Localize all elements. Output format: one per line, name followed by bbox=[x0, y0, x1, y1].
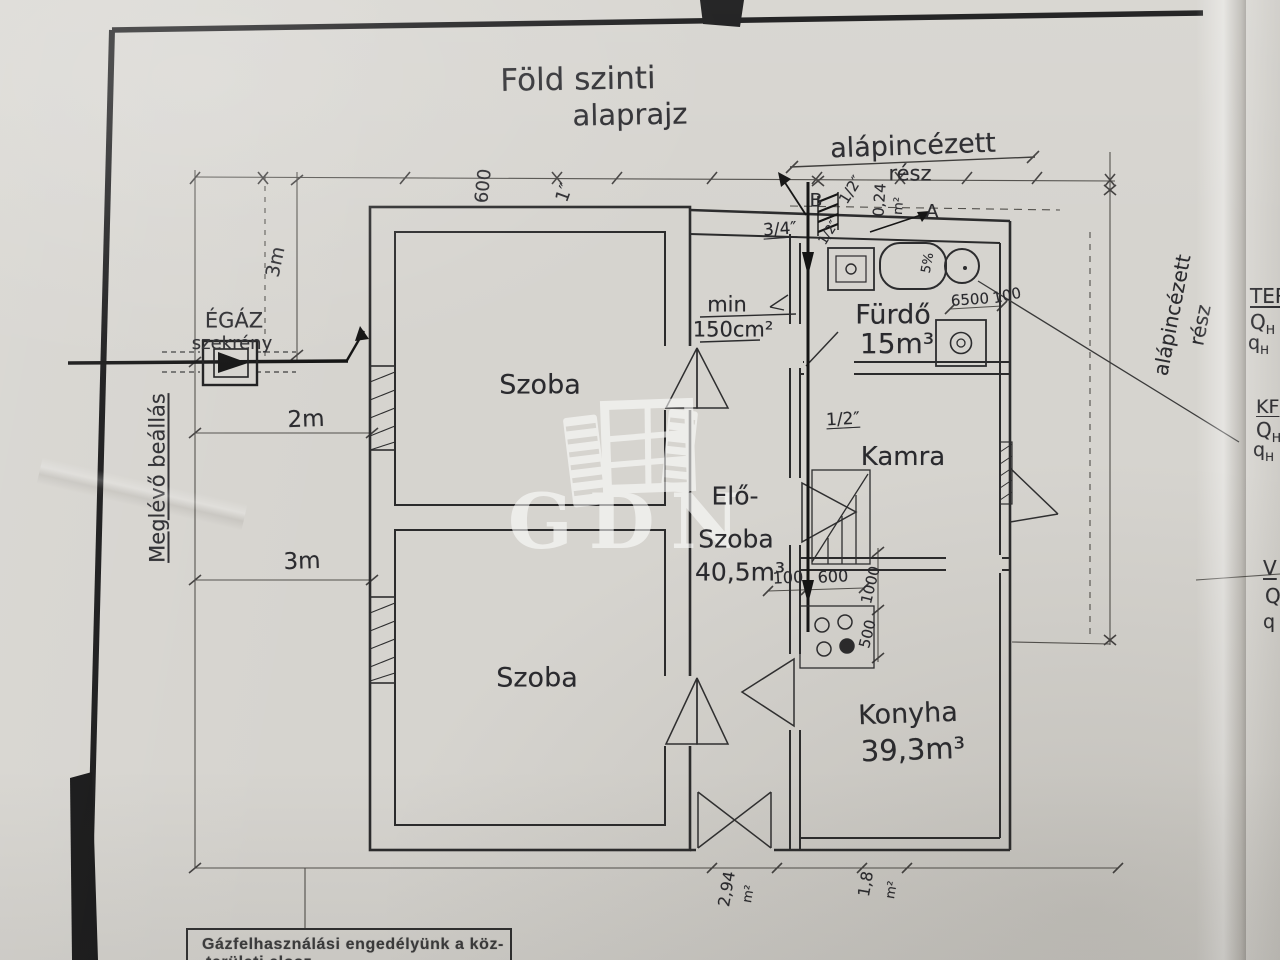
room-label-szoba-lower: Szoba bbox=[496, 665, 578, 692]
gas-cabinet-label-line2: szekrény bbox=[192, 335, 272, 353]
dim-294-unit: m² bbox=[741, 884, 757, 904]
dim-600-top: 600 bbox=[473, 168, 494, 204]
vent-area-label: 0,24 bbox=[871, 183, 888, 217]
page-title-line2: alaprajz bbox=[572, 99, 687, 130]
dim-100-hall: 100 bbox=[772, 569, 803, 587]
marker-a: A bbox=[926, 203, 939, 222]
flue-detail bbox=[812, 470, 870, 564]
vent-min-label: min bbox=[707, 295, 747, 316]
room-label-furdo: Fürdő bbox=[855, 302, 930, 329]
existing-stand-label: Meglévő beállás bbox=[148, 393, 169, 563]
dim-18: 1,8 bbox=[856, 870, 876, 898]
room-label-kamra: Kamra bbox=[861, 444, 945, 470]
side-note-qh4: qH bbox=[1253, 441, 1274, 464]
dim-3m: 3m bbox=[283, 550, 321, 574]
side-note-v: V bbox=[1263, 558, 1277, 578]
page-title-line1: Föld szinti bbox=[500, 63, 656, 97]
pipe-three-quarter-label: 3/4″ bbox=[763, 220, 798, 239]
side-note-kf: KF bbox=[1256, 398, 1279, 417]
side-note-q5: Q bbox=[1265, 586, 1280, 606]
washbasin-icon bbox=[828, 248, 874, 290]
side-note-q6: q bbox=[1263, 613, 1275, 632]
dim-18-unit: m² bbox=[884, 880, 900, 900]
dim-6500: 6500 bbox=[950, 291, 989, 309]
room-area-furdo: 15m³ bbox=[860, 330, 934, 358]
room-label-konyha: Konyha bbox=[858, 699, 959, 729]
room-area-konyha: 39,3m³ bbox=[860, 734, 965, 767]
vent-min-value: 150cm² bbox=[693, 320, 774, 341]
scanned-floorplan-photo: GDN Föld szinti alaprajz alápincézett ré… bbox=[0, 0, 1280, 960]
basement-top-label-line2: rész bbox=[888, 164, 931, 185]
vent-area-unit: m² bbox=[892, 197, 906, 216]
room-label-szoba-upper: Szoba bbox=[499, 372, 581, 399]
basement-top-label-line1: alápincézett bbox=[830, 130, 997, 163]
side-note-qh2: qH bbox=[1248, 334, 1269, 357]
permit-stamp-line1: Gázfelhasználási engedélyünk a köz- bbox=[202, 936, 504, 954]
gas-cabinet-label-line1: ÉGÁZ bbox=[205, 311, 263, 332]
floorplan-linework: GDN bbox=[0, 0, 1280, 960]
dim-2m: 2m bbox=[287, 408, 325, 432]
room-label-eloszoba-line1: Elő- bbox=[711, 484, 758, 509]
room-label-eloszoba-line2: Szoba bbox=[698, 527, 773, 552]
marker-b: B bbox=[809, 192, 822, 211]
permit-stamp-line2: területi elosz bbox=[206, 954, 312, 960]
slope-label: 5% bbox=[920, 252, 936, 275]
toilet-icon bbox=[936, 320, 986, 366]
pipe-half-kamra-label: 1/2″ bbox=[826, 411, 861, 430]
side-note-ter: TER bbox=[1250, 286, 1280, 306]
dim-600-hall: 600 bbox=[817, 568, 848, 586]
